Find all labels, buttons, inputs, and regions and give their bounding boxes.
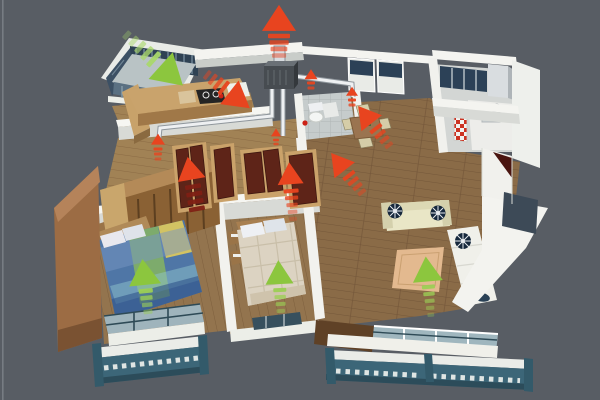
washer xyxy=(322,102,339,118)
hall-exhaust-center-trail-dash xyxy=(289,217,297,222)
fresh-second-bedroom-trail-dash xyxy=(273,288,286,293)
fan-sofa xyxy=(455,233,471,249)
duct-end-left-trail-dash xyxy=(155,158,162,161)
left-edge-highlight xyxy=(2,0,4,400)
duct-branch-right-trail-dash xyxy=(307,82,315,85)
tall-cabinet xyxy=(488,64,508,98)
toaster xyxy=(178,90,196,104)
duct-end-right-trail-dash xyxy=(349,104,356,107)
roof-exhaust-trail-dash xyxy=(271,47,288,52)
fan-right xyxy=(431,206,446,221)
roof-exhaust-trail-dash xyxy=(272,53,286,58)
floor-plan-figure xyxy=(0,0,600,400)
hall-exhaust-center-trail-dash xyxy=(288,210,298,215)
fresh-master-bedroom-trail-dash xyxy=(143,309,152,314)
fan-left xyxy=(388,204,403,219)
duct-branch-right-trail-dash xyxy=(308,87,315,90)
toilet xyxy=(309,112,323,122)
duct-end-left-trail-dash xyxy=(154,148,163,151)
hall-grille-trail-dash xyxy=(273,143,278,146)
fresh-living-room-trail-dash xyxy=(427,313,434,318)
fresh-second-bedroom-trail-dash xyxy=(274,295,286,300)
red-bin xyxy=(302,120,307,125)
duct-end-left-trail-dash xyxy=(154,153,162,156)
fresh-second-bedroom-trail-dash xyxy=(277,309,285,313)
hall-grille-trail-dash xyxy=(273,139,279,142)
floor-plan-rendering xyxy=(0,0,600,400)
roof-exhaust-trail-dash xyxy=(268,34,290,39)
fresh-second-bedroom-trail-dash xyxy=(276,302,286,307)
hall-exhaust-center-trail-dash xyxy=(286,203,298,208)
fresh-living-room-trail-dash xyxy=(426,306,435,311)
duct-end-right-trail-dash xyxy=(348,99,356,102)
roof-exhaust-trail-dash xyxy=(269,40,288,45)
